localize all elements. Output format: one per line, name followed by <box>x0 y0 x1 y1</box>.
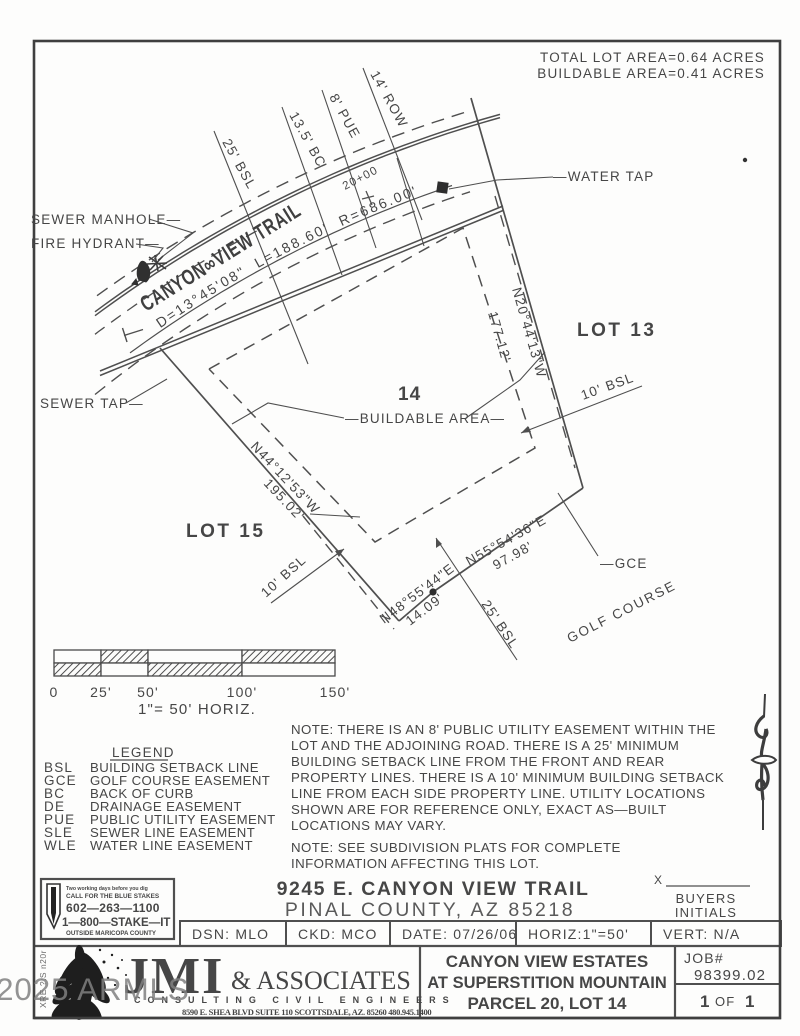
svg-text:1: 1 <box>745 992 756 1011</box>
svg-text:DATE: 07/26/06: DATE: 07/26/06 <box>402 926 517 942</box>
svg-text:CALL FOR THE BLUE STAKES: CALL FOR THE BLUE STAKES <box>66 893 160 900</box>
svg-text:—BUILDABLE AREA—: —BUILDABLE AREA— <box>345 411 505 426</box>
svg-text:OUTSIDE MARICOPA COUNTY: OUTSIDE MARICOPA COUNTY <box>66 930 157 937</box>
svg-text:& ASSOCIATES: & ASSOCIATES <box>231 966 411 995</box>
svg-text:—WATER TAP: —WATER TAP <box>553 169 655 184</box>
svg-text:2025 ARMLS: 2025 ARMLS <box>0 971 190 1007</box>
svg-text:—GCE: —GCE <box>600 556 648 571</box>
svg-text:SHOWN ARE FOR REFERENCE ONLY,: SHOWN ARE FOR REFERENCE ONLY, EXACT AS—B… <box>291 802 667 817</box>
svg-text:JOB#: JOB# <box>684 950 724 966</box>
svg-text:LOT 15: LOT 15 <box>186 521 265 542</box>
svg-text:SEWER MANHOLE—: SEWER MANHOLE— <box>31 212 181 227</box>
svg-text:PARCEL 20, LOT 14: PARCEL 20, LOT 14 <box>467 994 627 1013</box>
svg-text:WLE: WLE <box>44 838 77 853</box>
svg-text:8590 E. SHEA BLVD SUITE 110 SC: 8590 E. SHEA BLVD SUITE 110 SCOTTSDALE, … <box>182 1007 431 1017</box>
svg-text:CANYON VIEW ESTATES: CANYON VIEW ESTATES <box>446 952 648 971</box>
svg-text:HORIZ:1"=50': HORIZ:1"=50' <box>528 926 629 942</box>
svg-text:OF: OF <box>715 994 735 1009</box>
svg-text:NOTE: THERE IS AN 8' PUBLIC UT: NOTE: THERE IS AN 8' PUBLIC UTILITY EASE… <box>291 722 716 737</box>
svg-text:1—800—STAKE—IT: 1—800—STAKE—IT <box>62 917 170 929</box>
svg-text:14: 14 <box>398 384 421 405</box>
svg-text:PINAL COUNTY, AZ 85218: PINAL COUNTY, AZ 85218 <box>285 899 575 921</box>
svg-text:LOCATIONS MAY VARY.: LOCATIONS MAY VARY. <box>291 818 446 833</box>
svg-text:WATER LINE EASEMENT: WATER LINE EASEMENT <box>90 838 253 853</box>
svg-text:VERT: N/A: VERT: N/A <box>663 926 740 942</box>
svg-text:PROPERTY LINES. THERE IS A 10': PROPERTY LINES. THERE IS A 10' MINIMUM B… <box>291 770 724 785</box>
svg-text:BUILDABLE AREA=0.41 ACRES: BUILDABLE AREA=0.41 ACRES <box>537 66 765 81</box>
svg-text:LOT AND THE ADJOINING ROAD. TH: LOT AND THE ADJOINING ROAD. THERE IS A 2… <box>291 738 679 753</box>
svg-text:98399.02: 98399.02 <box>694 967 766 984</box>
svg-text:NOTE: SEE SUBDIVISION PLATS FO: NOTE: SEE SUBDIVISION PLATS FOR COMPLETE <box>291 840 621 855</box>
svg-text:TOTAL LOT AREA=0.64 ACRES: TOTAL LOT AREA=0.64 ACRES <box>540 50 765 65</box>
svg-text:X: X <box>654 873 663 887</box>
svg-text:150': 150' <box>320 684 351 700</box>
svg-text:25': 25' <box>90 684 112 700</box>
svg-text:FIRE HYDRANT—: FIRE HYDRANT— <box>31 236 160 251</box>
svg-text:INFORMATION AFFECTING THIS LOT: INFORMATION AFFECTING THIS LOT. <box>291 856 539 871</box>
svg-text:50': 50' <box>137 684 159 700</box>
svg-text:BUILDING SETBACK LINE FROM THE: BUILDING SETBACK LINE FROM THE FRONT AND… <box>291 754 665 769</box>
svg-text:100': 100' <box>227 684 258 700</box>
svg-text:9245 E. CANYON VIEW TRAIL: 9245 E. CANYON VIEW TRAIL <box>277 878 590 900</box>
svg-text:LINE FROM EACH SIDE PROPERTY L: LINE FROM EACH SIDE PROPERTY LINE. UTILI… <box>291 786 705 801</box>
svg-text:0: 0 <box>50 684 59 700</box>
svg-text:1"= 50' HORIZ.: 1"= 50' HORIZ. <box>138 701 256 718</box>
svg-text:CKD: MCO: CKD: MCO <box>298 926 378 942</box>
svg-text:602—263—1100: 602—263—1100 <box>66 901 160 915</box>
svg-text:SEWER TAP—: SEWER TAP— <box>40 396 144 411</box>
svg-text:DSN: MLO: DSN: MLO <box>192 926 269 942</box>
svg-text:INITIALS: INITIALS <box>675 905 737 920</box>
svg-text:1: 1 <box>700 992 711 1011</box>
svg-text:LOT 13: LOT 13 <box>577 320 656 341</box>
svg-text:LEGEND: LEGEND <box>112 745 175 760</box>
svg-text:AT SUPERSTITION MOUNTAIN: AT SUPERSTITION MOUNTAIN <box>427 974 667 992</box>
svg-text:XRE ?:S n20r: XRE ?:S n20r <box>38 950 48 1008</box>
svg-text:Two working days before you di: Two working days before you dig <box>66 886 148 892</box>
svg-text:BUYERS: BUYERS <box>676 891 737 906</box>
